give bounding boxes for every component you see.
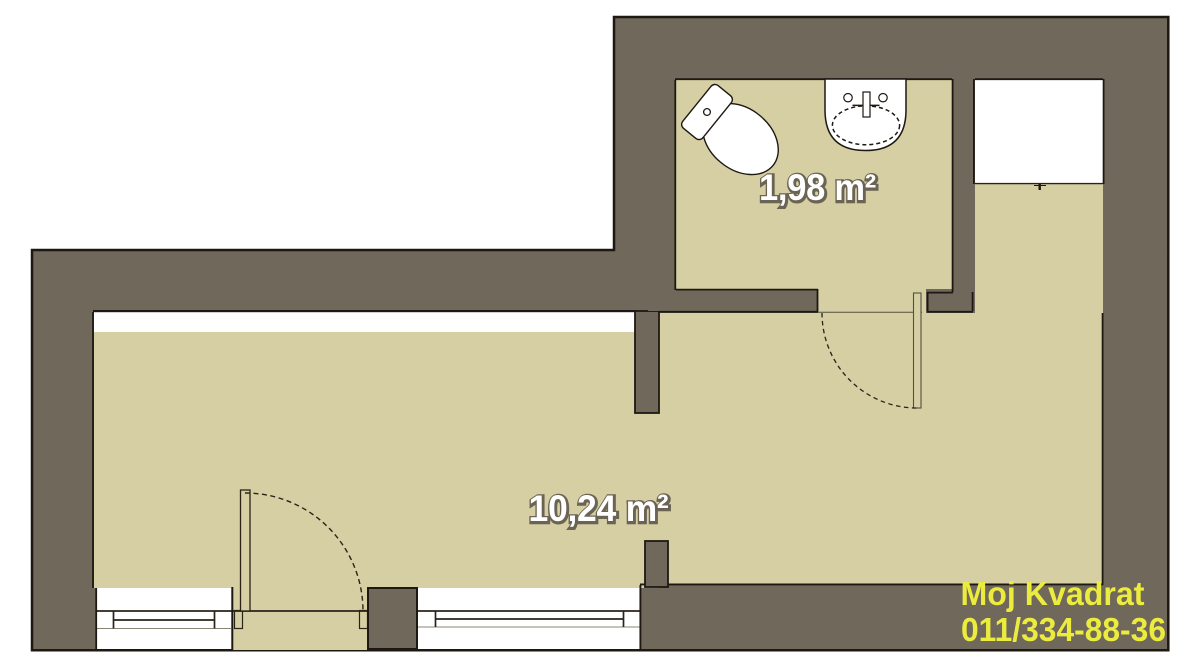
svg-text:Moj Kvadrat: Moj Kvadrat — [961, 576, 1145, 613]
svg-text:1,98 m²: 1,98 m² — [759, 167, 876, 208]
svg-text:10,24 m²: 10,24 m² — [529, 487, 669, 529]
svg-text:011/334-88-36: 011/334-88-36 — [961, 612, 1166, 649]
